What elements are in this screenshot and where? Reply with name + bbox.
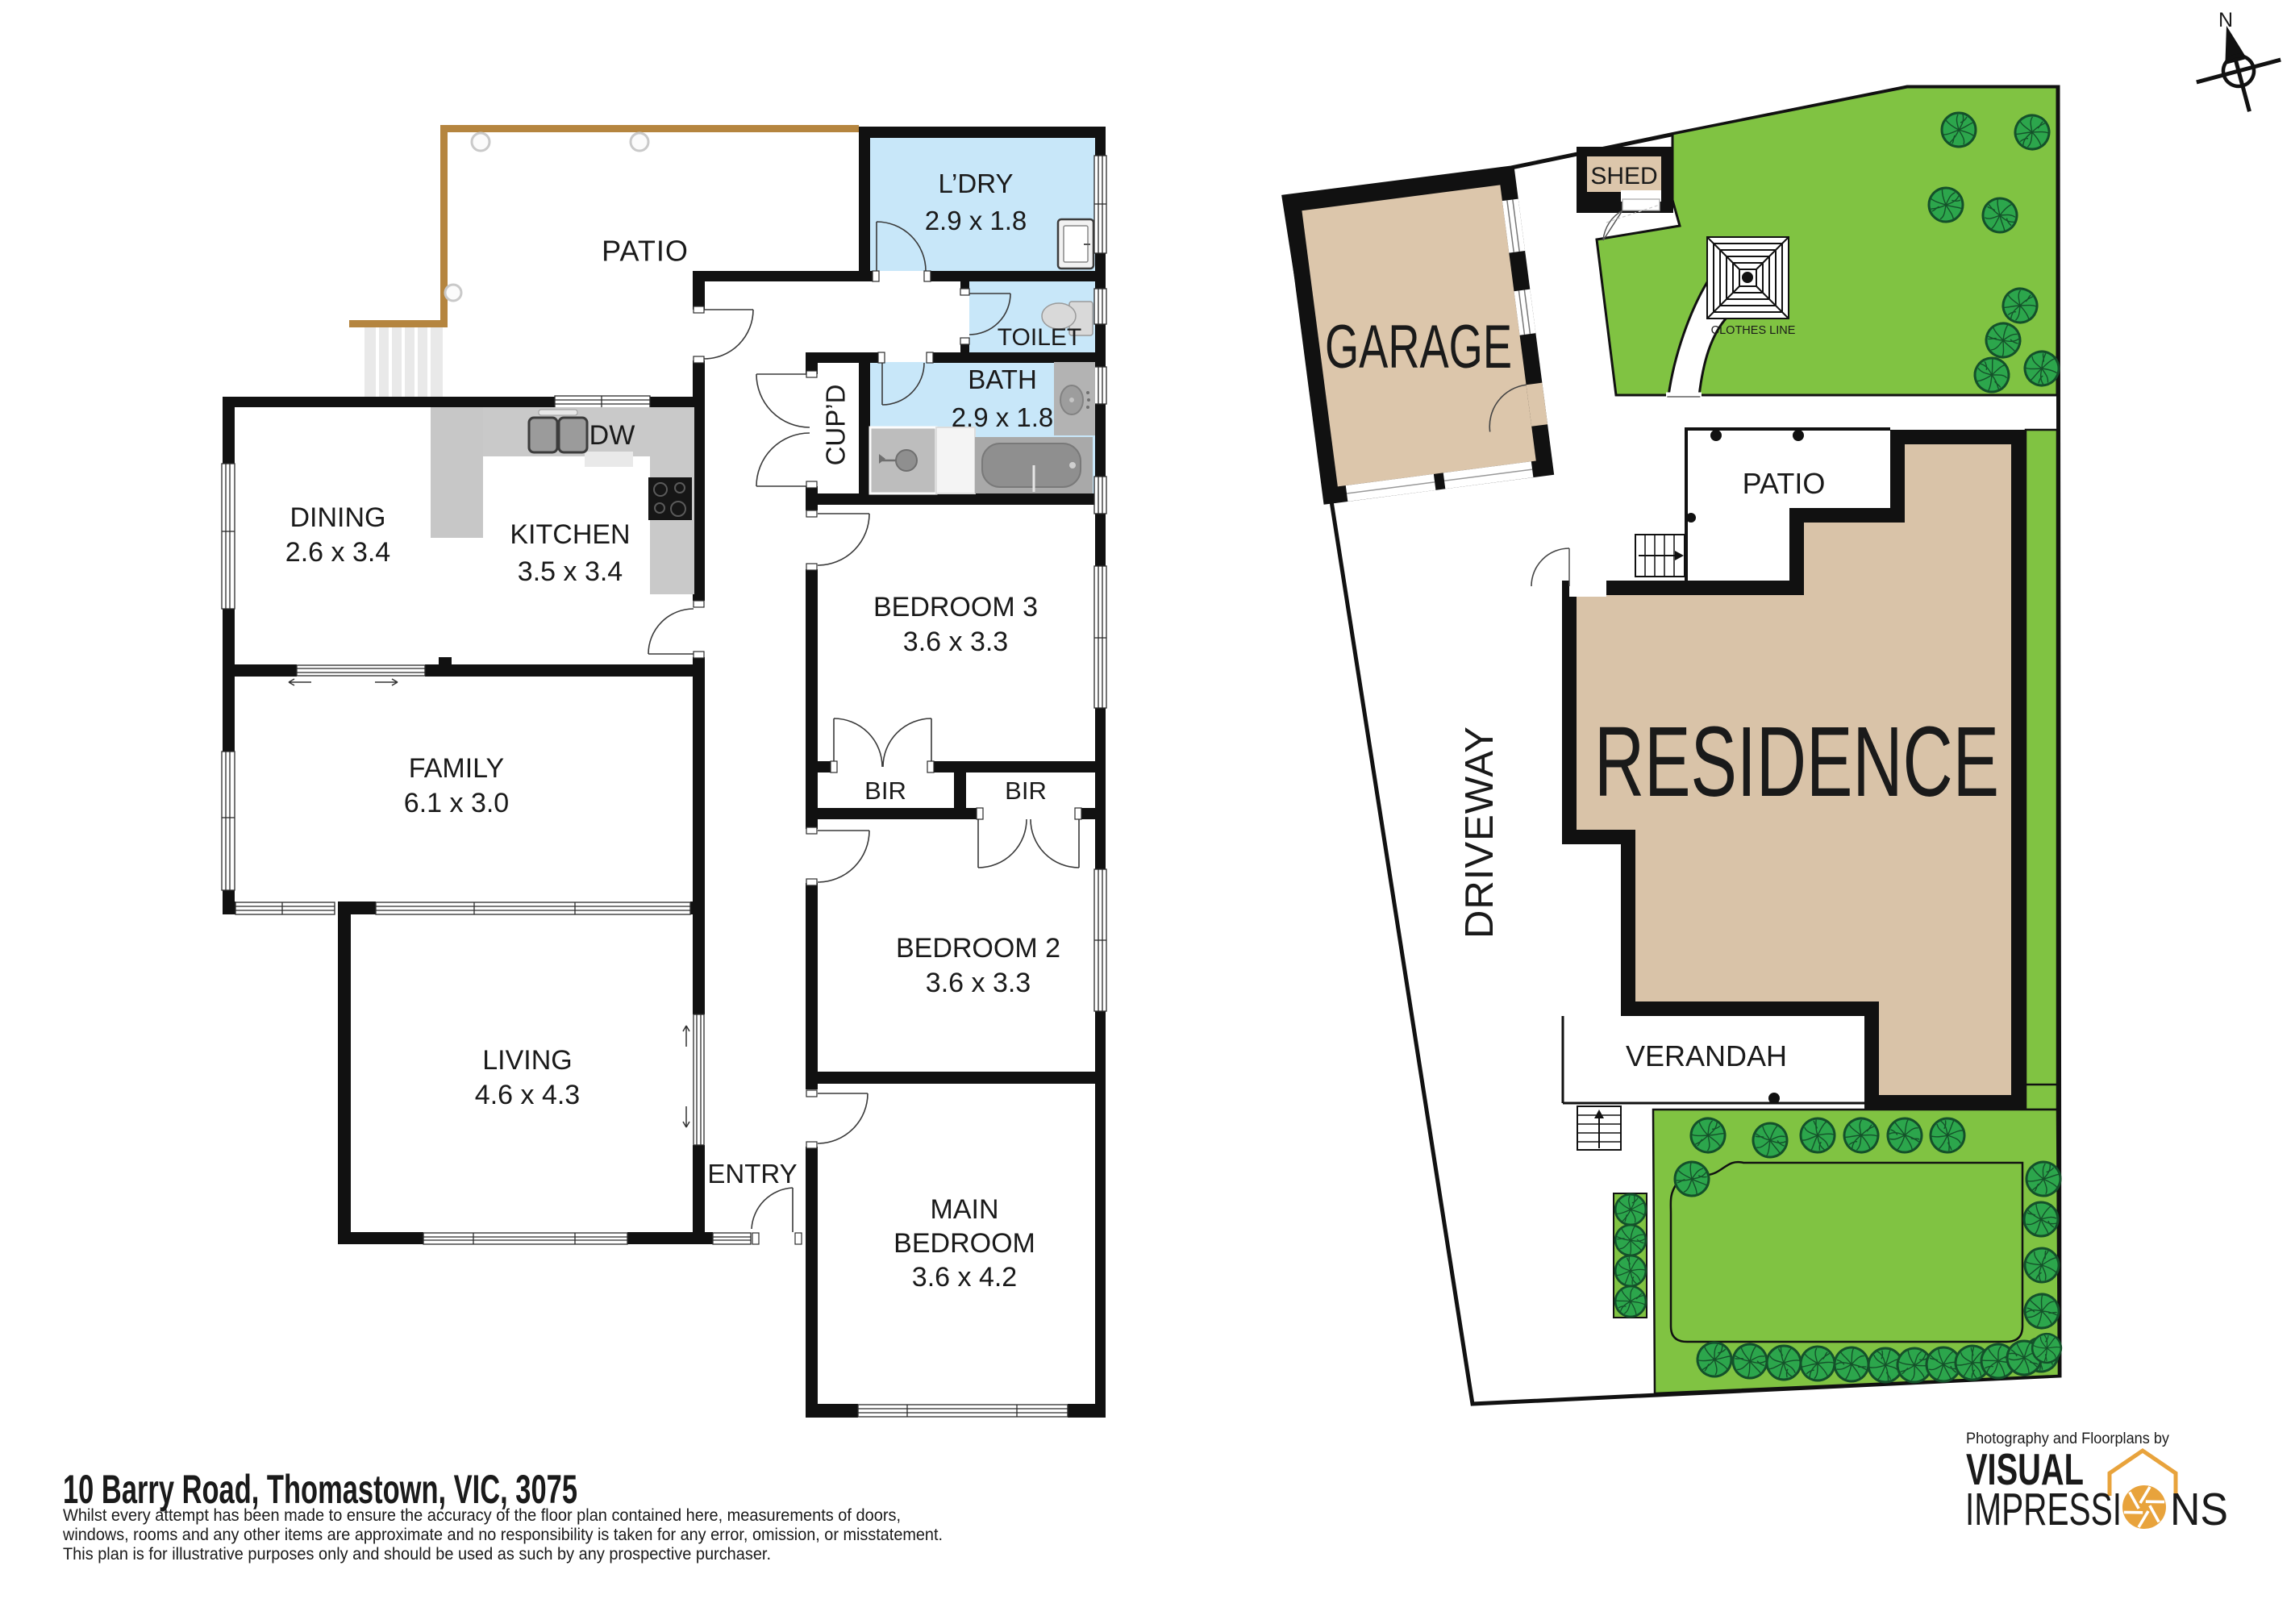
svg-text:DRIVEWAY: DRIVEWAY xyxy=(1458,726,1502,939)
svg-text:SHED: SHED xyxy=(1590,163,1657,189)
svg-text:ENTRY: ENTRY xyxy=(707,1159,797,1189)
svg-text:KITCHEN: KITCHEN xyxy=(510,519,630,550)
svg-text:4.6 x 4.3: 4.6 x 4.3 xyxy=(475,1080,580,1110)
svg-text:3.6 x 3.3: 3.6 x 3.3 xyxy=(926,968,1031,998)
svg-text:TOILET: TOILET xyxy=(998,324,1081,351)
svg-text:MAIN: MAIN xyxy=(931,1194,999,1225)
svg-text:L’DRY: L’DRY xyxy=(939,169,1014,198)
svg-text:BEDROOM 2: BEDROOM 2 xyxy=(896,933,1060,964)
svg-text:3.5 x 3.4: 3.5 x 3.4 xyxy=(518,556,623,587)
svg-text:LIVING: LIVING xyxy=(482,1045,572,1076)
svg-text:DINING: DINING xyxy=(290,502,386,533)
svg-text:FAMILY: FAMILY xyxy=(409,753,504,784)
svg-text:VERANDAH: VERANDAH xyxy=(1626,1039,1787,1072)
svg-text:2.6 x 3.4: 2.6 x 3.4 xyxy=(285,537,390,568)
svg-text:PATIO: PATIO xyxy=(1743,467,1826,500)
svg-text:GARAGE: GARAGE xyxy=(1325,313,1512,381)
svg-text:CLOTHES LINE: CLOTHES LINE xyxy=(1711,324,1796,337)
svg-text:BIR: BIR xyxy=(864,777,906,805)
svg-text:BIR: BIR xyxy=(1005,777,1047,805)
svg-text:DW: DW xyxy=(589,420,635,451)
svg-text:This plan is for illustrative: This plan is for illustrative purposes o… xyxy=(63,1544,771,1564)
svg-text:BATH: BATH xyxy=(968,364,1037,394)
svg-text:BEDROOM: BEDROOM xyxy=(893,1228,1035,1259)
svg-text:2.9 x 1.8: 2.9 x 1.8 xyxy=(952,402,1054,432)
svg-text:NS: NS xyxy=(2170,1484,2228,1535)
svg-text:RESIDENCE: RESIDENCE xyxy=(1594,707,1999,818)
svg-text:BEDROOM 3: BEDROOM 3 xyxy=(873,592,1038,623)
svg-text:CUP’D: CUP’D xyxy=(821,385,851,466)
svg-text:3.6 x 3.3: 3.6 x 3.3 xyxy=(903,627,1008,657)
svg-text:windows, rooms and any other i: windows, rooms and any other items are a… xyxy=(62,1525,943,1544)
svg-text:Whilst every attempt has been: Whilst every attempt has been made to en… xyxy=(63,1505,901,1525)
svg-text:N: N xyxy=(2218,9,2233,31)
svg-text:6.1 x 3.0: 6.1 x 3.0 xyxy=(404,788,509,818)
svg-text:PATIO: PATIO xyxy=(602,235,689,268)
svg-text:3.6 x 4.2: 3.6 x 4.2 xyxy=(912,1262,1017,1293)
svg-text:IMPRESSI: IMPRESSI xyxy=(1965,1484,2122,1535)
svg-text:2.9 x 1.8: 2.9 x 1.8 xyxy=(925,206,1027,235)
